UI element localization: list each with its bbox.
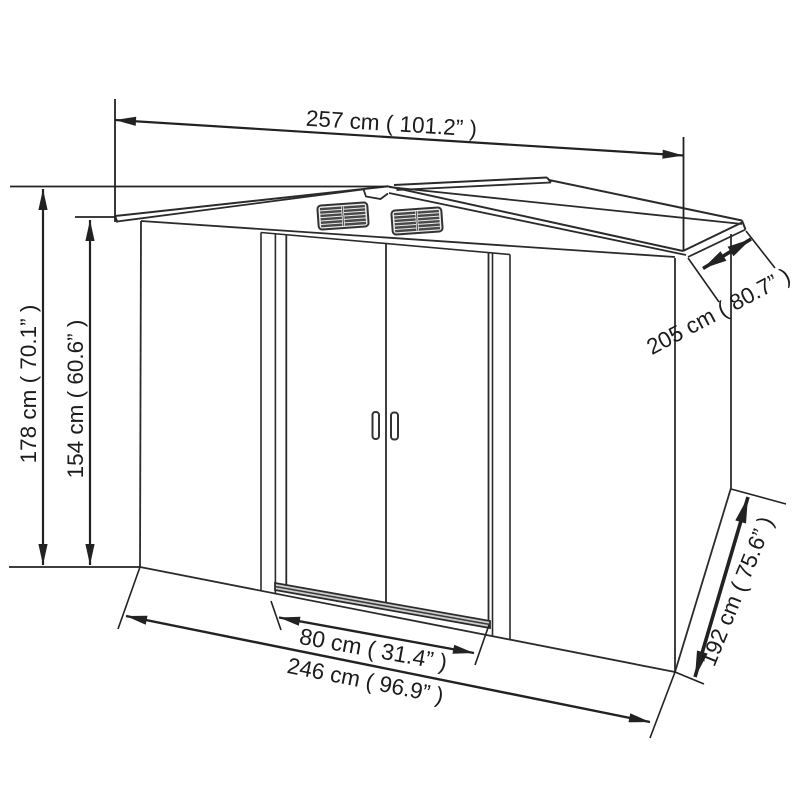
svg-text:154 cm ( 60.6” ): 154 cm ( 60.6” )	[63, 320, 88, 479]
svg-text:178 cm ( 70.1” ): 178 cm ( 70.1” )	[16, 305, 41, 464]
